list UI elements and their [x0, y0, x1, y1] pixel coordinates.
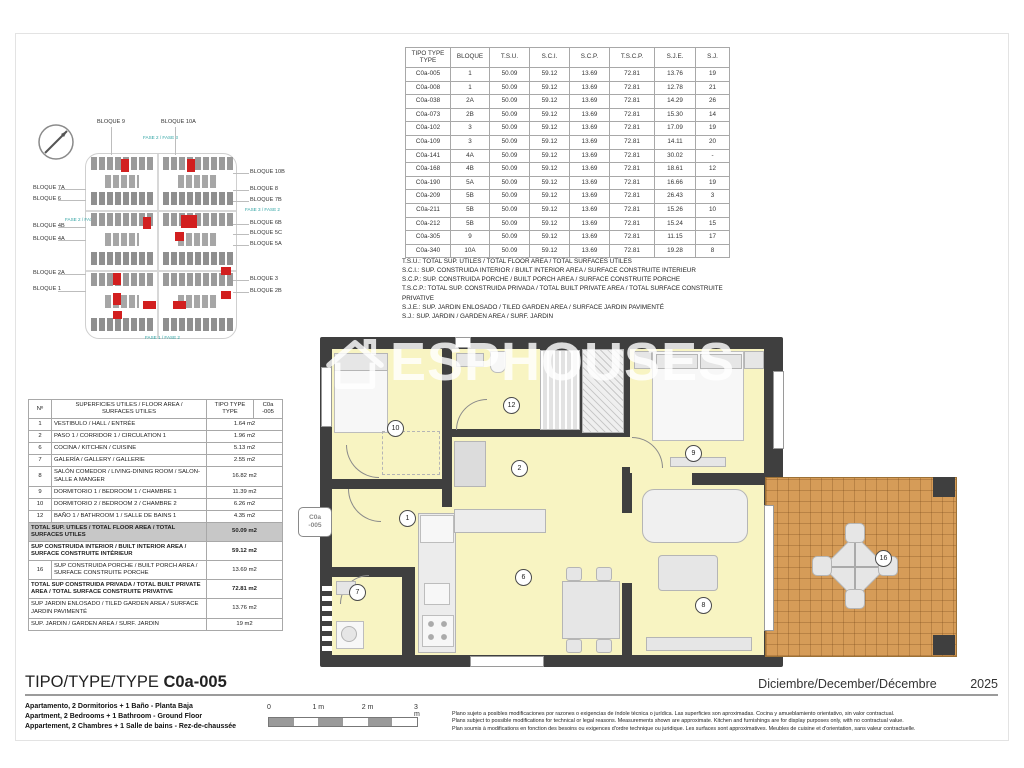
surface-label: SUP CONSTRUIDA INTERIOR / BUILT INTERIOR… — [29, 542, 207, 561]
surfaces-col-type: TIPO TYPE TYPE — [207, 400, 254, 419]
units-cell: 59.12 — [530, 217, 570, 231]
units-table: TIPO TYPE TYPEBLOQUET.S.U.S.C.I.S.C.P.T.… — [405, 47, 730, 258]
legal-disclaimer: Plano sujeto a posibles modificaciones p… — [452, 711, 1000, 733]
units-table-row: C0a-0382A50.0959.1213.6972.8114.2926 — [406, 95, 730, 109]
surface-num: 1 — [29, 419, 52, 431]
units-cell: 15.26 — [655, 203, 696, 217]
units-cell: 13.69 — [570, 135, 610, 149]
unit-tag-line1: C0a — [299, 514, 331, 522]
units-cell: C0a-340 — [406, 244, 451, 258]
window-bedroom1 — [773, 371, 784, 449]
surfaces-table-row: SUP JARDIN ENLOSADO / TILED GARDEN AREA … — [29, 599, 283, 618]
louver-window-galeria — [322, 581, 332, 651]
kitchen-sink-icon — [424, 583, 450, 605]
bloque-label: BLOQUE 6B — [250, 220, 282, 226]
surface-num: 7 — [29, 455, 52, 467]
units-cell: 50.09 — [490, 95, 530, 109]
nightstand-icon — [744, 351, 764, 369]
units-cell: 19 — [696, 122, 730, 136]
site-plan: BLOQUE 9BLOQUE 10ABLOQUE 7ABLOQUE 6BLOQU… — [25, 105, 307, 363]
scale-segment — [343, 718, 368, 726]
units-col-header: T.S.U. — [490, 48, 530, 68]
units-col-header: BLOQUE — [451, 48, 490, 68]
units-cell: 10A — [451, 244, 490, 258]
coffee-table-icon — [658, 555, 718, 591]
units-cell: 50.09 — [490, 203, 530, 217]
date-text: Diciembre/December/Décembre — [758, 677, 937, 691]
terrace-pillar — [933, 477, 955, 497]
leader-line — [233, 173, 249, 174]
leader-line — [111, 127, 112, 155]
building-row — [105, 233, 139, 246]
surfaces-table-row: 2PASO 1 / CORRIDOR 1 / CIRCULATION 11.96… — [29, 431, 283, 443]
units-table-row: C0a-305950.0959.1213.6972.8111.1517 — [406, 231, 730, 245]
units-cell: C0a-005 — [406, 68, 451, 82]
tv-unit-icon — [646, 637, 752, 651]
units-col-header: TIPO TYPE TYPE — [406, 48, 451, 68]
scale-label: 2 m — [362, 704, 374, 711]
units-cell: 5B — [451, 203, 490, 217]
units-cell: 15.24 — [655, 217, 696, 231]
surface-value: 1.64 m2 — [207, 419, 283, 431]
units-cell: 3 — [451, 135, 490, 149]
highlighted-unit — [113, 293, 121, 305]
watermark: ESPHOUSES — [324, 331, 735, 393]
leader-line — [233, 224, 249, 225]
abbreviation-line: T.S.C.P.: TOTAL SUP. CONSTRUIDA PRIVADA … — [402, 284, 744, 302]
chair-icon — [596, 567, 612, 581]
units-cell: 11.15 — [655, 231, 696, 245]
dining-table-icon — [562, 581, 620, 639]
leader-line — [58, 200, 86, 201]
surface-value: 6.26 m2 — [207, 498, 283, 510]
units-cell: 26.43 — [655, 190, 696, 204]
units-cell: 72.81 — [610, 108, 655, 122]
units-cell: 30.02 — [655, 149, 696, 163]
description-line: Apartamento, 2 Dormitorios + 1 Baño - Pl… — [25, 702, 236, 712]
units-cell: 72.81 — [610, 244, 655, 258]
surface-label: COCINA / KITCHEN / CUISINE — [52, 443, 207, 455]
description-line: Apartment, 2 Bedrooms + 1 Bathroom - Gro… — [25, 712, 236, 722]
units-cell: C0a-008 — [406, 81, 451, 95]
surface-label: DORMITORIO 1 / BEDROOM 1 / CHAMBRE 1 — [52, 486, 207, 498]
footer-divider — [25, 694, 998, 696]
units-cell: C0a-212 — [406, 217, 451, 231]
surface-value: 72.81 m2 — [207, 580, 283, 599]
units-cell: 72.81 — [610, 81, 655, 95]
units-cell: 1 — [451, 81, 490, 95]
units-cell: 13.69 — [570, 81, 610, 95]
units-cell: 17.09 — [655, 122, 696, 136]
surface-label: DORMITORIO 2 / BEDROOM 2 / CHAMBRE 2 — [52, 498, 207, 510]
chair-icon — [596, 639, 612, 653]
watermark-text: ESPHOUSES — [390, 331, 735, 393]
units-col-header: T.S.C.P. — [610, 48, 655, 68]
bloque-label: BLOQUE 8 — [250, 186, 278, 192]
units-cell: 17 — [696, 231, 730, 245]
units-cell: 19.28 — [655, 244, 696, 258]
description-line: Appartement, 2 Chambres + 1 Salle de bai… — [25, 722, 236, 732]
highlighted-unit — [113, 311, 122, 319]
scale-segment — [294, 718, 319, 726]
units-table-row: C0a-1684B50.0959.1213.6972.8118.6112 — [406, 163, 730, 177]
leader-line — [233, 201, 249, 202]
surfaces-table-row: TOTAL SUP CONSTRUIDA PRIVADA / TOTAL BUI… — [29, 580, 283, 599]
type-value: C0a-005 — [163, 673, 226, 691]
leader-line — [233, 292, 249, 293]
units-cell: 10 — [696, 203, 730, 217]
units-col-header: S.J. — [696, 48, 730, 68]
leader-line — [233, 280, 249, 281]
units-cell: 59.12 — [530, 135, 570, 149]
units-table-row: C0a-2115B50.0959.1213.6972.8115.2610 — [406, 203, 730, 217]
units-cell: 13.69 — [570, 203, 610, 217]
units-cell: 20 — [696, 135, 730, 149]
units-cell: 50.09 — [490, 244, 530, 258]
highlighted-unit — [181, 215, 197, 228]
scale-segment — [392, 718, 417, 726]
surface-value: 2.55 m2 — [207, 455, 283, 467]
year-text: 2025 — [970, 677, 998, 691]
units-cell: 21 — [696, 81, 730, 95]
units-cell: 72.81 — [610, 231, 655, 245]
units-cell: 50.09 — [490, 149, 530, 163]
units-cell: 3 — [696, 190, 730, 204]
units-table-row: C0a-2095B50.0959.1213.6972.8126.433 — [406, 190, 730, 204]
units-cell: 50.09 — [490, 122, 530, 136]
units-cell: 72.81 — [610, 95, 655, 109]
road — [86, 270, 236, 272]
highlighted-unit — [143, 301, 156, 309]
fase-label: FASE 1 / FASE 2 — [145, 335, 180, 340]
units-cell: 59.12 — [530, 81, 570, 95]
units-cell: C0a-038 — [406, 95, 451, 109]
units-cell: 72.81 — [610, 122, 655, 136]
type-label: TIPO/TYPE/TYPE — [25, 673, 159, 691]
units-cell: 59.12 — [530, 231, 570, 245]
units-cell: 50.09 — [490, 163, 530, 177]
units-cell: 15.30 — [655, 108, 696, 122]
room-number-9: 9 — [685, 445, 702, 462]
road — [157, 154, 159, 338]
units-cell: C0a-073 — [406, 108, 451, 122]
opening-kitchen-living — [622, 513, 632, 583]
units-cell: C0a-190 — [406, 176, 451, 190]
surfaces-table-row: 9DORMITORIO 1 / BEDROOM 1 / CHAMBRE 111.… — [29, 486, 283, 498]
building-cluster — [163, 213, 233, 265]
highlighted-unit — [173, 301, 186, 309]
units-cell: 13.69 — [570, 163, 610, 177]
units-cell: 59.12 — [530, 149, 570, 163]
surface-value: 11.39 m2 — [207, 486, 283, 498]
units-cell: 13.69 — [570, 217, 610, 231]
surface-num: 12 — [29, 510, 52, 522]
units-cell: 14 — [696, 108, 730, 122]
units-table-row: C0a-1905A50.0959.1213.6972.8116.6619 — [406, 176, 730, 190]
units-cell: 5A — [451, 176, 490, 190]
highlighted-unit — [121, 159, 129, 172]
bloque-label: BLOQUE 9 — [97, 119, 125, 125]
units-cell: C0a-109 — [406, 135, 451, 149]
abbreviation-line: T.S.U.: TOTAL SUP. UTILES / TOTAL FLOOR … — [402, 257, 744, 266]
units-cell: C0a-211 — [406, 203, 451, 217]
units-cell: 12 — [696, 163, 730, 177]
surface-value: 1.96 m2 — [207, 431, 283, 443]
highlighted-unit — [143, 217, 151, 229]
surfaces-table-row: 1VESTIBULO / HALL / ENTRÉE1.64 m2 — [29, 419, 283, 431]
cupboard-icon — [454, 441, 486, 487]
surface-value: 4.35 m2 — [207, 510, 283, 522]
units-cell: 19 — [696, 68, 730, 82]
surface-num: 8 — [29, 467, 52, 486]
leader-line — [233, 245, 249, 246]
units-cell: 59.12 — [530, 176, 570, 190]
leader-line — [58, 274, 86, 275]
units-cell: 59.12 — [530, 190, 570, 204]
units-cell: 4B — [451, 163, 490, 177]
surface-value: 19 m2 — [207, 618, 283, 630]
surfaces-col-unit: C0a -005 — [254, 400, 283, 419]
surface-label: GALERÍA / GALLERY / GALLERIE — [52, 455, 207, 467]
disclaimer-line: Plan soumis à modifications en fonction … — [452, 726, 1000, 733]
units-cell: 13.69 — [570, 122, 610, 136]
sheet-type-title: TIPO/TYPE/TYPE C0a-005 — [25, 673, 227, 692]
surfaces-table-row: SUP. JARDIN / GARDEN AREA / SURF. JARDIN… — [29, 618, 283, 630]
surface-label: SUP CONSTRUIDA PORCHE / BUILT PORCH AREA… — [52, 561, 207, 580]
surface-num: 2 — [29, 431, 52, 443]
opening-corridor-living — [632, 467, 692, 485]
unit-description: Apartamento, 2 Dormitorios + 1 Baño - Pl… — [25, 702, 236, 731]
room-number-1: 1 — [399, 510, 416, 527]
units-cell: 15 — [696, 217, 730, 231]
units-cell: 13.69 — [570, 68, 610, 82]
building-row — [178, 233, 217, 246]
surface-value: 13.76 m2 — [207, 599, 283, 618]
surfaces-col-label: SUPERFICIES UTILES / FLOOR AREA / SURFAC… — [52, 400, 207, 419]
surface-value: 13.69 m2 — [207, 561, 283, 580]
units-cell: 13.76 — [655, 68, 696, 82]
units-cell: 50.09 — [490, 68, 530, 82]
units-cell: 72.81 — [610, 135, 655, 149]
units-cell: 4A — [451, 149, 490, 163]
leader-line — [233, 190, 249, 191]
room-number-12: 12 — [503, 397, 520, 414]
units-cell: 2A — [451, 95, 490, 109]
surfaces-col-num: Nº — [29, 400, 52, 419]
bloque-label: BLOQUE 2B — [250, 288, 282, 294]
units-cell: 59.12 — [530, 122, 570, 136]
kitchen-counter — [454, 509, 546, 533]
surfaces-table-row: 12BAÑO 1 / BATHROOM 1 / SALLE DE BAINS 1… — [29, 510, 283, 522]
units-cell: C0a-141 — [406, 149, 451, 163]
bloque-label: BLOQUE 4A — [33, 236, 65, 242]
leader-line — [58, 240, 86, 241]
units-cell: C0a-102 — [406, 122, 451, 136]
units-cell: C0a-305 — [406, 231, 451, 245]
units-cell: 13.69 — [570, 149, 610, 163]
units-cell: 50.09 — [490, 108, 530, 122]
units-cell: 13.69 — [570, 176, 610, 190]
terrace-chair-icon — [845, 589, 865, 609]
bloque-label: BLOQUE 7B — [250, 197, 282, 203]
units-cell: 1 — [451, 68, 490, 82]
units-cell: 3 — [451, 122, 490, 136]
scale-segment — [368, 718, 393, 726]
surface-num: 6 — [29, 443, 52, 455]
highlighted-unit — [187, 159, 195, 172]
units-table-row: C0a-008150.0959.1213.6972.8112.7821 — [406, 81, 730, 95]
surface-value: 59.12 m2 — [207, 542, 283, 561]
room-number-10: 10 — [387, 420, 404, 437]
surfaces-table-row: 16SUP CONSTRUIDA PORCHE / BUILT PORCH AR… — [29, 561, 283, 580]
units-cell: 13.69 — [570, 108, 610, 122]
fase-label: FASE 2 / FASE 3 — [143, 135, 178, 140]
units-cell: 72.81 — [610, 176, 655, 190]
surface-label: SUP JARDIN ENLOSADO / TILED GARDEN AREA … — [29, 599, 207, 618]
units-table-row: C0a-2125B50.0959.1213.6972.8115.2415 — [406, 217, 730, 231]
units-cell: 59.12 — [530, 68, 570, 82]
units-cell: 14.29 — [655, 95, 696, 109]
units-cell: 8 — [696, 244, 730, 258]
sofa-icon — [642, 489, 748, 543]
abbreviations-legend: T.S.U.: TOTAL SUP. UTILES / TOTAL FLOOR … — [402, 257, 744, 321]
units-cell: 19 — [696, 176, 730, 190]
surface-num: 16 — [29, 561, 52, 580]
surface-num: 10 — [29, 498, 52, 510]
units-cell: 59.12 — [530, 244, 570, 258]
units-cell: 18.61 — [655, 163, 696, 177]
unit-tag-line2: -005 — [299, 522, 331, 530]
window-kitchen — [470, 656, 544, 667]
surface-value: 50.09 m2 — [207, 522, 283, 541]
compass-icon — [35, 121, 77, 163]
units-cell: 59.12 — [530, 163, 570, 177]
bloque-label: BLOQUE 3 — [250, 276, 278, 282]
scale-bar: 01 m2 m3 m — [268, 717, 418, 727]
terrace-chair-icon — [845, 523, 865, 543]
surfaces-table-row: 7GALERÍA / GALLERY / GALLERIE2.55 m2 — [29, 455, 283, 467]
room-number-16: 16 — [875, 550, 892, 567]
units-cell: 13.69 — [570, 190, 610, 204]
bloque-label: BLOQUE 7A — [33, 185, 65, 191]
terrace-chair-icon — [812, 556, 832, 576]
surface-label: SALÓN COMEDOR / LIVING-DINING ROOM / SAL… — [52, 467, 207, 486]
units-cell: 50.09 — [490, 81, 530, 95]
surface-value: 16.82 m2 — [207, 467, 283, 486]
bloque-label: BLOQUE 5A — [250, 241, 282, 247]
units-cell: 72.81 — [610, 190, 655, 204]
stove-icon — [422, 615, 454, 647]
sliding-door-terrace — [764, 505, 774, 631]
units-cell: 12.78 — [655, 81, 696, 95]
room-number-7: 7 — [349, 584, 366, 601]
units-cell: 72.81 — [610, 217, 655, 231]
units-table-row: C0a-109350.0959.1213.6972.8114.1120 — [406, 135, 730, 149]
building-row — [105, 295, 139, 308]
building-row — [105, 175, 139, 188]
surface-label: TOTAL SUP. UTILES / TOTAL FLOOR AREA / T… — [29, 522, 207, 541]
units-cell: 59.12 — [530, 108, 570, 122]
surfaces-table-row: SUP CONSTRUIDA INTERIOR / BUILT INTERIOR… — [29, 542, 283, 561]
surfaces-table-row: 8SALÓN COMEDOR / LIVING-DINING ROOM / SA… — [29, 467, 283, 486]
units-cell: 50.09 — [490, 176, 530, 190]
chair-icon — [566, 639, 582, 653]
surface-label: BAÑO 1 / BATHROOM 1 / SALLE DE BAINS 1 — [52, 510, 207, 522]
scale-segment — [269, 718, 294, 726]
units-cell: C0a-168 — [406, 163, 451, 177]
highlighted-unit — [221, 267, 231, 275]
units-cell: 72.81 — [610, 163, 655, 177]
surface-label: SUP. JARDIN / GARDEN AREA / SURF. JARDIN — [29, 618, 207, 630]
building-cluster — [163, 157, 233, 205]
surfaces-table: Nº SUPERFICIES UTILES / FLOOR AREA / SUR… — [28, 399, 283, 631]
highlighted-unit — [113, 273, 121, 285]
house-logo-icon — [324, 334, 386, 390]
units-cell: - — [696, 149, 730, 163]
units-table-row: C0a-102350.0959.1213.6972.8117.0919 — [406, 122, 730, 136]
room-number-6: 6 — [515, 569, 532, 586]
bloque-label: BLOQUE 10B — [250, 169, 285, 175]
units-cell: 72.81 — [610, 149, 655, 163]
units-cell: 16.66 — [655, 176, 696, 190]
washing-machine-drum-icon — [341, 626, 357, 642]
opening-bedroom1-door — [622, 437, 632, 467]
wardrobe-dashed-icon — [382, 431, 440, 475]
units-col-header: S.C.P. — [570, 48, 610, 68]
units-cell: 9 — [451, 231, 490, 245]
sheet-date: Diciembre/December/Décembre 2025 — [758, 677, 998, 691]
units-cell: 13.69 — [570, 244, 610, 258]
abbreviation-line: S.J.E.: SUP. JARDIN ENLOSADO / TILED GAR… — [402, 303, 744, 312]
scale-label: 3 m — [414, 704, 420, 718]
surface-num: 9 — [29, 486, 52, 498]
building-row — [178, 175, 217, 188]
scale-label: 0 — [267, 704, 271, 711]
units-cell: 72.81 — [610, 203, 655, 217]
units-cell: 13.69 — [570, 231, 610, 245]
units-col-header: S.C.I. — [530, 48, 570, 68]
abbreviation-line: S.J.: SUP. JARDIN / GARDEN AREA / SURF. … — [402, 312, 744, 321]
units-cell: 50.09 — [490, 231, 530, 245]
abbreviation-line: S.C.I.: SUP. CONSTRUIDA INTERIOR / BUILT… — [402, 266, 744, 275]
disclaimer-line: Plans subject to possible modifications … — [452, 718, 1000, 725]
unit-tag: C0a -005 — [298, 507, 332, 537]
room-number-2: 2 — [511, 460, 528, 477]
units-cell: 50.09 — [490, 190, 530, 204]
chair-icon — [566, 567, 582, 581]
units-table-row: C0a-34010A50.0959.1213.6972.8119.288 — [406, 244, 730, 258]
surface-label: TOTAL SUP CONSTRUIDA PRIVADA / TOTAL BUI… — [29, 580, 207, 599]
leader-line — [58, 291, 86, 292]
surface-label: PASO 1 / CORRIDOR 1 / CIRCULATION 1 — [52, 431, 207, 443]
room-number-8: 8 — [695, 597, 712, 614]
units-col-header: S.J.E. — [655, 48, 696, 68]
terrace-pillar — [933, 635, 955, 655]
scale-label: 1 m — [312, 704, 324, 711]
leader-line — [58, 227, 86, 228]
fridge-icon — [420, 515, 454, 543]
disclaimer-line: Plano sujeto a posibles modificaciones p… — [452, 711, 1000, 718]
units-cell: 50.09 — [490, 135, 530, 149]
units-cell: 59.12 — [530, 95, 570, 109]
bloque-label: BLOQUE 6 — [33, 196, 61, 202]
bloque-label: BLOQUE 1 — [33, 286, 61, 292]
surfaces-table-row: 6COCINA / KITCHEN / CUISINE5.13 m2 — [29, 443, 283, 455]
abbreviation-line: S.C.P.: SUP. CONSTRUIDA PORCHE / BUILT P… — [402, 275, 744, 284]
surface-value: 5.13 m2 — [207, 443, 283, 455]
leader-line — [233, 234, 249, 235]
surfaces-table-row: TOTAL SUP. UTILES / TOTAL FLOOR AREA / T… — [29, 522, 283, 541]
